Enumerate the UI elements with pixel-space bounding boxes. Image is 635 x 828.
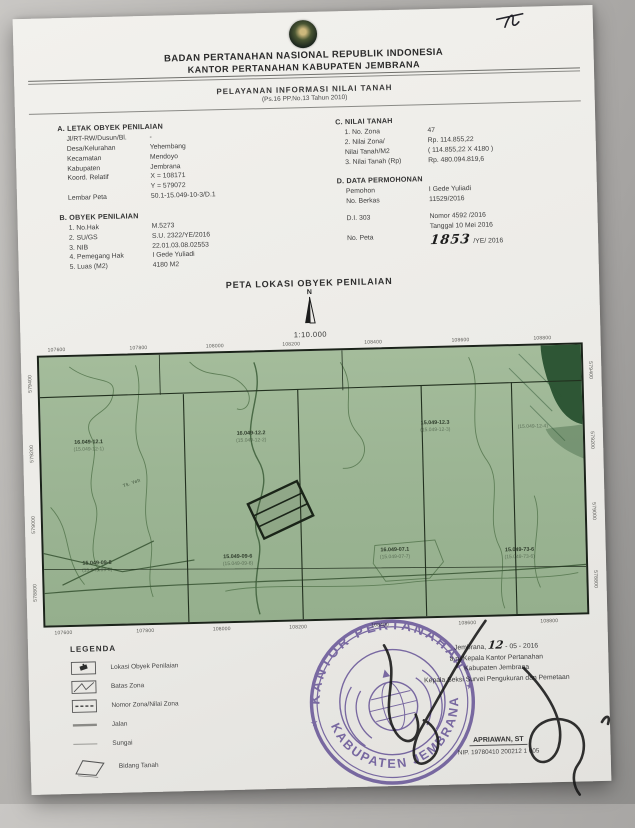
zone-label: 16.049-12.2(15.049-12-2) bbox=[236, 430, 267, 444]
legend: LEGENDA Lokasi Obyek Penilaian Batas Zon… bbox=[70, 642, 181, 780]
section-obyek-penilaian: B. OBYEK PENILAIAN 1. No.HakM.5273 2. SU… bbox=[59, 207, 312, 273]
x-tick: 108200 bbox=[282, 341, 300, 347]
x-tick: 107600 bbox=[54, 630, 72, 636]
x-tick: 108000 bbox=[206, 343, 224, 349]
y-tick: 578800 bbox=[592, 570, 598, 588]
info-sections: A. LETAK OBYEK PENILAIAN Jl/RT-RW/Dusun/… bbox=[15, 101, 599, 283]
section-nilai-tanah: C. NILAI TANAH 1. No. Zona47 2. Nilai Zo… bbox=[335, 111, 582, 167]
y-tick: 579400 bbox=[27, 374, 33, 392]
document-paper: BADAN PERTANAHAN NASIONAL REPUBLIK INDON… bbox=[13, 5, 612, 795]
zone-number-symbol bbox=[71, 698, 99, 714]
valuation-map: 16.049-12.1(15.049-12-1) 16.049-12.2(15.… bbox=[37, 342, 589, 627]
document-header: BADAN PERTANAHAN NASIONAL REPUBLIK INDON… bbox=[13, 11, 595, 115]
road-symbol bbox=[72, 717, 100, 733]
section-data-permohonan: D. DATA PERMOHONAN PemohonI Gede Yuliadi… bbox=[337, 171, 585, 253]
legend-label: Sungai bbox=[112, 740, 132, 747]
river-symbol bbox=[72, 736, 100, 752]
map-frame: 107600 107800 108000 108200 108400 10860… bbox=[37, 342, 589, 627]
zone-label: 15.049-12.3(15.049-12-3) bbox=[420, 420, 451, 434]
section-letak-obyek: A. LETAK OBYEK PENILAIAN Jl/RT-RW/Dusun/… bbox=[57, 118, 311, 204]
y-tick: 579000 bbox=[591, 502, 597, 520]
x-tick: 108000 bbox=[213, 626, 231, 632]
x-tick: 107600 bbox=[48, 347, 66, 353]
y-tick: 579200 bbox=[589, 431, 595, 449]
field-label: Lembar Peta bbox=[59, 192, 151, 204]
garuda-emblem-icon bbox=[289, 20, 318, 49]
object-parcel bbox=[248, 481, 313, 538]
object-location-symbol bbox=[70, 660, 98, 676]
map-graphics bbox=[39, 345, 587, 626]
zone-label: (15.049-12-4) bbox=[518, 423, 548, 430]
field-label: 3. Nilai Tanah (Rp) bbox=[336, 156, 428, 168]
legend-label: Nomor Zona/Nilai Zona bbox=[111, 700, 178, 709]
zone-label: 16.049-12.1(15.049-12-1) bbox=[73, 439, 104, 453]
stamp-star-left: ★ bbox=[309, 717, 319, 729]
legend-label: Lokasi Obyek Penilaian bbox=[110, 662, 178, 671]
map-number-suffix: /YE/ 2016 bbox=[473, 237, 503, 245]
zone-label: 16.049-07.1(15.049-07-7) bbox=[380, 547, 411, 561]
map-grid bbox=[39, 345, 587, 626]
field-label: No. Peta bbox=[338, 232, 430, 253]
bottom-block: LEGENDA Lokasi Obyek Penilaian Batas Zon… bbox=[28, 628, 612, 824]
zone-label: 15.049-09-8(15.049-09-8) bbox=[82, 560, 113, 574]
legend-label: Bidang Tanah bbox=[119, 761, 159, 769]
x-tick: 107800 bbox=[136, 628, 154, 634]
x-tick: 108400 bbox=[364, 339, 382, 345]
legend-title: LEGENDA bbox=[70, 642, 178, 654]
north-arrow-icon: N bbox=[298, 289, 321, 330]
legend-label: Jalan bbox=[112, 721, 128, 728]
field-label: 5. Luas (M2) bbox=[61, 261, 153, 273]
field-value: 1853/YE/ 2016 bbox=[430, 228, 584, 251]
road-lines bbox=[43, 530, 586, 593]
y-tick: 579000 bbox=[31, 516, 37, 534]
x-tick: 108600 bbox=[451, 337, 469, 343]
x-tick: 108800 bbox=[533, 335, 551, 341]
legend-label: Batas Zona bbox=[111, 682, 144, 690]
x-tick: 108800 bbox=[540, 618, 558, 624]
legend-item: Bidang Tanah bbox=[73, 751, 182, 780]
y-tick: 579200 bbox=[29, 445, 35, 463]
y-tick: 578800 bbox=[32, 584, 38, 602]
map-heading: PETA LOKASI OBYEK PENILAIAN N 1:10.000 bbox=[19, 271, 600, 346]
zone-label: 15.049-09-6(15.049-09-6) bbox=[223, 554, 254, 568]
zone-boundary-symbol bbox=[71, 679, 99, 695]
field-label: No. Berkas bbox=[337, 195, 429, 207]
handwritten-date: 12 bbox=[487, 639, 504, 652]
land-parcel-symbol bbox=[73, 754, 108, 779]
stamp-star-right: ★ bbox=[465, 680, 475, 692]
x-tick: 107800 bbox=[129, 345, 147, 351]
zone-label: 15.049-73-6(15.049-73-6) bbox=[504, 547, 535, 561]
forest-patch bbox=[541, 345, 583, 426]
handwritten-map-number: 1853 bbox=[429, 231, 471, 251]
river-line bbox=[249, 362, 267, 614]
y-tick: 579400 bbox=[587, 361, 593, 379]
